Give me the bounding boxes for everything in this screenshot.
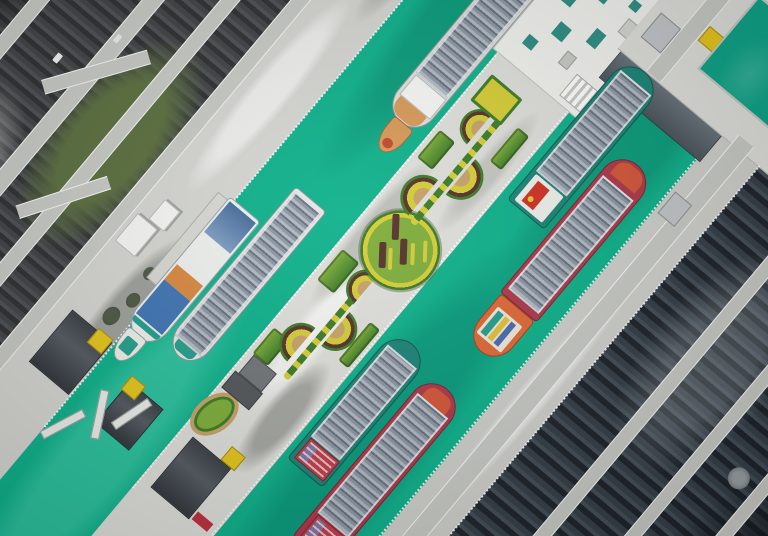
roof-unit-1	[558, 50, 577, 70]
roof-skylight-2	[551, 21, 572, 42]
roof-skylight-4	[595, 0, 612, 5]
roof-skylight-1	[522, 34, 539, 51]
emblem-chevron-1	[379, 242, 387, 268]
emblem-chevron-yellow-1	[388, 248, 393, 270]
emblem-chevron-yellow-3	[423, 241, 428, 263]
emblem-chevron-2	[400, 239, 408, 265]
roof-skylight-5	[586, 28, 607, 50]
roof-skylight-3	[561, 0, 578, 8]
rotated-scene	[0, 0, 768, 536]
roof-skylight-6	[628, 0, 642, 13]
emblem-chevron-yellow-2	[410, 243, 415, 265]
emblem-chevron-3	[392, 214, 400, 240]
aerial-photo-ship-lock	[0, 0, 768, 536]
